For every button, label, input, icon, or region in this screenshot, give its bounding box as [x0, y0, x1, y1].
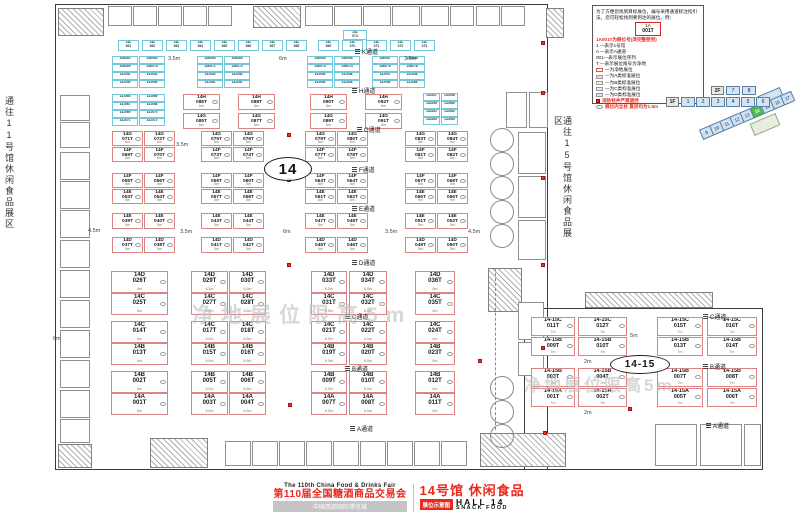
service-room	[744, 424, 761, 466]
fire-hydrant-marker	[478, 359, 482, 363]
booth-14G085T: 14G085T6m	[183, 113, 220, 129]
booth-14A004T: 14A004T6.5m	[229, 393, 266, 415]
booth-dimension: 6m	[239, 105, 274, 109]
booth-14D042T: 14D042T5m	[233, 237, 264, 253]
booth-14L066: 14L066	[238, 40, 259, 51]
fire-hydrant-marker	[628, 407, 632, 411]
booth-14D030T: 14D030T6.5m	[229, 271, 266, 293]
booth-14E061T: 14E061T6m	[305, 189, 336, 204]
minimap-hall-1: 1	[681, 97, 695, 107]
pillar-icon	[379, 380, 385, 384]
booth-dimension: 6.5m	[312, 410, 346, 414]
minimap-hall-8: 8	[742, 86, 756, 95]
booth-label: 14K070	[146, 65, 158, 69]
pillar-icon	[428, 195, 434, 199]
aisle-label-B通道: B通道	[345, 364, 368, 373]
pillar-icon	[256, 219, 262, 223]
dimension-label: 3.5m	[180, 229, 192, 235]
aisle-label-K通道: K通道	[355, 47, 378, 56]
booth-label: 062	[150, 45, 156, 49]
booth-dimension: 5m	[202, 183, 231, 187]
booth-14E066T: 14E066T5m	[437, 189, 468, 204]
stairs-area	[150, 438, 208, 468]
pillar-icon	[339, 330, 345, 334]
stairs-area	[58, 8, 104, 36]
booth-label: 022T	[361, 328, 375, 334]
booth-label: 072	[398, 45, 404, 49]
booth-14G071T: 14G071T6m	[112, 131, 143, 146]
fire-hydrant-marker	[287, 263, 291, 267]
pillar-icon	[567, 344, 573, 348]
legend-sample-line2: 001T	[636, 29, 660, 35]
booth-14J062: 14J062	[441, 109, 458, 117]
booth-dimension: 5m	[234, 224, 263, 228]
pillar-icon	[160, 302, 166, 306]
pillar-icon	[220, 352, 226, 356]
service-room	[60, 240, 90, 268]
booth-14G084T: 14G084T6m	[437, 131, 468, 146]
booth-14F064T: 14F064T6m	[337, 173, 368, 188]
booth-label: 065	[222, 45, 228, 49]
stairs-area	[488, 268, 522, 312]
booth-14G089T: 14G089T6m	[310, 113, 347, 129]
booth-label: 14J062	[444, 110, 455, 114]
booth-14B015T: 14B015T6.5m	[191, 343, 228, 365]
fire-hydrant-marker	[541, 176, 545, 180]
booth-14J045: 14J045	[307, 72, 333, 80]
booth-dimension: 7m	[658, 351, 702, 355]
booth-dimension: 6m	[416, 288, 454, 292]
stairs-icon	[352, 88, 357, 94]
booth-dimension: 5m	[113, 224, 142, 228]
booth-dimension: 5m	[438, 183, 467, 187]
dimension-text: 2m	[584, 359, 592, 365]
booth-14J061: 14J061	[423, 109, 440, 117]
pillar-icon	[339, 100, 345, 104]
booth-14J047: 14J047	[372, 72, 398, 80]
service-room	[60, 300, 90, 328]
fire-hydrant-marker	[543, 431, 547, 435]
stairs-area	[546, 8, 564, 38]
booth-14K076: 14K076	[399, 64, 425, 72]
booth-label: 14J051	[204, 81, 215, 85]
booth-14D029T: 14D029T6.5m	[191, 271, 228, 293]
booth-label: 009T	[322, 378, 336, 384]
booth-14J068: 14J068	[139, 102, 165, 110]
booth-14D026T: 14D026T6m	[111, 271, 168, 293]
booth-14E062T: 14E062T6m	[337, 189, 368, 204]
pillar-icon	[135, 219, 141, 223]
booth-14B023T: 14B023T6m	[415, 343, 455, 365]
pillar-icon	[328, 137, 334, 141]
booth-label: 011T	[428, 400, 441, 406]
corridor-label-left: 通往11号馆休闲食品展区	[4, 96, 13, 268]
booth-label: 019T	[322, 350, 336, 356]
booth-dimension: 5m	[145, 199, 174, 203]
booth-dimension: 6m	[145, 157, 174, 161]
booth-dimension: 5m	[145, 248, 174, 252]
booth-label: 073	[422, 45, 428, 49]
booth-14J051: 14J051	[197, 80, 223, 88]
booth-14J049: 14J049	[112, 80, 138, 88]
stairs-icon	[352, 206, 357, 212]
stairs-area	[58, 444, 92, 468]
booth-label: 14K074	[341, 65, 353, 69]
aisle-label-B通道: B通道	[703, 362, 726, 371]
booth-14D049T: 14D049T5m	[405, 237, 436, 253]
pillar-icon	[360, 243, 366, 247]
booth-14B009T: 14B009T6.5m	[311, 371, 347, 393]
dimension-label: 3.5m	[385, 229, 397, 235]
booth-label: 14J044	[231, 73, 242, 77]
booth-14L062: 14L062	[142, 40, 163, 51]
booth-14B012T: 14B012T6m	[415, 371, 455, 393]
booth-label: 035T	[428, 300, 442, 306]
pillar-icon	[339, 352, 345, 356]
pillar-icon	[447, 352, 453, 356]
dimension-label: 6m	[283, 229, 291, 235]
pillar-icon	[220, 402, 226, 406]
booth-label: 018T	[241, 328, 255, 334]
stairs-icon	[703, 314, 708, 320]
dimension-label: 2m	[584, 359, 592, 365]
booth-14E047T: 14E047T6m	[305, 213, 336, 229]
booth-14J058: 14J058	[441, 93, 458, 101]
booth-label: 14J049	[119, 81, 130, 85]
booth-dimension: 6m	[338, 183, 367, 187]
booth-label: 14J050	[146, 81, 157, 85]
booth-label: 011T	[547, 324, 559, 330]
booth-label: 014T	[133, 328, 147, 334]
dimension-text: 6m	[279, 56, 287, 62]
booth-14F060T: 14F060T5m	[233, 173, 264, 188]
booth-14K070: 14K070	[139, 64, 165, 72]
floor-plan-canvas: 通往11号馆休闲食品展区 通往15号馆休闲食品展区 为了方便您找到目标展位，编号…	[0, 0, 798, 516]
dimension-label: 4.5m	[88, 228, 100, 234]
service-room	[60, 419, 90, 443]
booth-14J070: 14J070	[139, 110, 165, 118]
dimension-label: 6m	[53, 336, 61, 342]
booth-label: 14J054	[341, 81, 352, 85]
booth-14K074: 14K074	[334, 64, 360, 72]
booth-dimension: 6m	[239, 124, 274, 128]
minimap-1f-label: 1F	[666, 97, 679, 107]
booth-label: 14K069	[119, 65, 131, 69]
service-room	[60, 152, 90, 180]
booth-dimension: 5m	[113, 183, 142, 187]
booth-dimension: 6m	[338, 248, 367, 252]
aisle-text: B通道	[352, 364, 368, 373]
pillar-icon	[447, 330, 453, 334]
booth-dimension: 6m	[112, 310, 167, 314]
booth-dimension: 5m	[234, 183, 263, 187]
booth-14L074: 14L074	[343, 30, 367, 40]
booth-dimension: 6m	[406, 141, 435, 145]
pillar-icon	[224, 243, 230, 247]
booth-label: 14K066	[341, 57, 353, 61]
pillar-icon	[258, 402, 264, 406]
booth-dimension: 5m	[145, 224, 174, 228]
booth-14F070T: 14F070T6m	[144, 147, 175, 162]
booth-dimension: 6.5m	[230, 410, 265, 414]
booth-dimension: 7m	[532, 351, 574, 355]
booth-14L067: 14L067	[262, 40, 283, 51]
pillar-icon	[256, 137, 262, 141]
pillar-icon	[749, 324, 755, 328]
pillar-icon	[379, 280, 385, 284]
booth-label: 016T	[241, 350, 255, 356]
booth-14J056: 14J056	[399, 80, 425, 88]
booth-dimension: 6m	[338, 199, 367, 203]
booth-dimension: 6.5m	[192, 288, 227, 292]
booth-dimension: 6.5m	[312, 288, 346, 292]
booth-label: 14J060	[444, 102, 455, 106]
booth-14J059: 14J059	[423, 101, 440, 109]
booth-14J055: 14J055	[372, 80, 398, 88]
pillar-icon	[619, 344, 625, 348]
pillar-icon	[379, 352, 385, 356]
booth-label: 061	[126, 45, 132, 49]
booth-label: 14K075	[379, 65, 391, 69]
booth-dimension: 6.5m	[312, 338, 346, 342]
pillar-icon	[428, 179, 434, 183]
booth-14F069T: 14F069T6m	[112, 147, 143, 162]
aisle-text: G通道	[364, 125, 381, 134]
aisle-label-D通道: D通道	[352, 258, 375, 267]
stairs-area	[253, 6, 301, 28]
booth-dimension: 6m	[202, 157, 231, 161]
booth-label: 013T	[133, 350, 147, 356]
booth-dimension: 6m	[112, 360, 167, 364]
booth-label: 14J047	[379, 73, 390, 77]
minimap-hall-7: 7	[726, 86, 740, 95]
booth-14K069: 14K069	[112, 64, 138, 72]
pillar-icon	[167, 153, 173, 157]
booth-dimension: 6.5m	[192, 338, 227, 342]
service-room	[518, 132, 546, 174]
booth-14-15B010T: 14-15B010T7m	[578, 337, 627, 356]
watermark: 净地展位限高5m	[192, 299, 412, 329]
booth-label: 014T	[726, 344, 739, 350]
booth-14L072: 14L072	[390, 40, 411, 51]
booth-dimension: 6m	[416, 410, 454, 414]
booth-14L063: 14L063	[166, 40, 187, 51]
booth-dimension: 5m	[406, 224, 435, 228]
booth-label: 14K072	[231, 65, 243, 69]
booth-label: 14J070	[146, 111, 157, 115]
booth-14A008T: 14A008T6.5m	[349, 393, 387, 415]
booth-dimension: 6m	[112, 338, 167, 342]
pillar-icon	[167, 179, 173, 183]
booth-label: 14J053	[314, 81, 325, 85]
pillar-icon	[267, 100, 273, 104]
booth-14K061: 14K061	[112, 56, 138, 64]
booth-14G087T: 14G087T6m	[238, 113, 275, 129]
service-room	[60, 360, 90, 388]
service-room	[392, 6, 420, 26]
booth-14H090T: 14H090T6m	[310, 94, 347, 110]
booth-label: 14J072	[146, 119, 157, 123]
booth-14F059T: 14F059T5m	[201, 173, 232, 188]
booth-dimension: 6.5m	[192, 360, 227, 364]
service-room	[279, 441, 305, 466]
booth-14J067: 14J067	[112, 102, 138, 110]
pillar-icon	[695, 344, 701, 348]
booth-label: 14J046	[341, 73, 352, 77]
booth-label: 025T	[133, 300, 147, 306]
booth-14A003T: 14A003T6.5m	[191, 393, 228, 415]
dimension-text: 2m	[584, 410, 592, 416]
legend-swatches: —为净地展位—为A类标准展位—为B类标准展位—为C类标准展位—为D类标准展位	[596, 67, 700, 98]
booth-label: 001T	[133, 400, 147, 406]
aisle-text: E通道	[359, 204, 375, 213]
booth-14F078T: 14F078T6m	[337, 147, 368, 162]
pillar-icon	[695, 324, 701, 328]
booth-label: 005T	[203, 378, 217, 384]
service-room	[655, 424, 697, 466]
scalloped-wall	[489, 376, 515, 468]
aisle-label-F通道: F通道	[352, 165, 375, 174]
booth-dimension: 5m	[202, 199, 231, 203]
service-room	[158, 6, 182, 26]
booth-dimension: 6.5m	[312, 360, 346, 364]
plan-badge: 展位示意图	[420, 499, 454, 510]
pillar-icon	[379, 402, 385, 406]
booth-dimension: 6m	[145, 141, 174, 145]
dimension-text: 3.5m	[176, 142, 188, 148]
venue-name: 中国西部国际博览城	[273, 501, 406, 512]
booth-dimension: 7m	[579, 331, 626, 335]
title-divider	[413, 484, 414, 512]
booth-14G083T: 14G083T6m	[405, 131, 436, 146]
booth-14F074T: 14F074T6m	[233, 147, 264, 162]
booth-label: 14J057	[426, 94, 437, 98]
fire-hydrant-marker	[288, 403, 292, 407]
booth-label: 010T	[361, 378, 375, 384]
booth-14F067T: 14F067T5m	[405, 173, 436, 188]
service-room	[208, 6, 232, 26]
booth-dimension: 6.5m	[192, 388, 227, 392]
fire-hydrant-marker	[541, 41, 545, 45]
booth-14J072: 14J072	[139, 118, 165, 126]
booth-14J063: 14J063	[423, 117, 440, 125]
booth-label: 012T	[428, 378, 442, 384]
service-room	[518, 176, 546, 218]
booth-14-15C012T: 14-15C012T7m	[578, 317, 627, 336]
pillar-icon	[258, 280, 264, 284]
pillar-icon	[224, 179, 230, 183]
booth-label: 005T	[674, 395, 687, 401]
booth-14D045T: 14D045T6m	[305, 237, 336, 253]
booth-14D041T: 14D041T5m	[201, 237, 232, 253]
aisle-text: D通道	[359, 258, 375, 267]
pillar-icon	[160, 280, 166, 284]
booth-dimension: 5m	[202, 224, 231, 228]
pillar-icon	[135, 195, 141, 199]
booth-label: 14J052	[231, 81, 242, 85]
booth-14D050T: 14D050T5m	[437, 237, 468, 253]
service-room	[700, 424, 742, 466]
booth-14L061: 14L061	[118, 40, 139, 51]
booth-dimension: 6m	[184, 124, 219, 128]
booth-dimension: 6m	[416, 360, 454, 364]
aisle-text: K通道	[362, 47, 378, 56]
booth-14E053T: 14E053T5m	[112, 189, 143, 204]
pillar-icon	[328, 243, 334, 247]
booth-label: 14K071	[204, 65, 216, 69]
booth-label: 008T	[726, 375, 739, 381]
booth-14E054T: 14E054T5m	[144, 189, 175, 204]
booth-dimension: 6m	[113, 157, 142, 161]
booth-label: 14J063	[426, 118, 437, 122]
pillar-icon	[379, 330, 385, 334]
booth-14-15B014T: 14-15B014T7m	[707, 337, 757, 356]
booth-14E065T: 14E065T5m	[405, 189, 436, 204]
booth-dimension: 5m	[113, 248, 142, 252]
service-room	[360, 441, 386, 466]
aisle-label-A通道: A通道	[706, 421, 729, 430]
booth-14K062: 14K062	[139, 56, 165, 64]
booth-14J069: 14J069	[112, 110, 138, 118]
booth-label: 14J068	[146, 103, 157, 107]
pillar-icon	[167, 219, 173, 223]
booth-14K063: 14K063	[197, 56, 223, 64]
legend-swatch	[596, 87, 603, 91]
booth-14-15C015T: 14-15C015T7m	[657, 317, 703, 336]
minimap-hall-4: 4	[726, 97, 740, 107]
pillar-icon	[167, 137, 173, 141]
booth-dimension: 5m	[406, 199, 435, 203]
booth-label: 010T	[596, 344, 609, 350]
booth-14D033T: 14D033T6.5m	[311, 271, 347, 293]
booth-14A007T: 14A007T6.5m	[311, 393, 347, 415]
booth-label: 14J066	[146, 95, 157, 99]
service-room	[60, 390, 90, 418]
service-room	[421, 6, 449, 26]
aisle-label-E通道: E通道	[352, 204, 375, 213]
service-room	[363, 6, 391, 26]
booth-14D037T: 14D037T5m	[112, 237, 143, 253]
pillar-icon	[394, 119, 400, 123]
booth-label: 068	[294, 45, 300, 49]
pillar-icon	[224, 219, 230, 223]
booth-14J050: 14J050	[139, 80, 165, 88]
booth-label: 036T	[428, 278, 442, 284]
dimension-label: 3.5m	[404, 56, 416, 62]
legend-swatch	[596, 81, 603, 85]
booth-dimension: 6m	[306, 183, 335, 187]
service-room	[60, 210, 90, 238]
booth-14B013T: 14B013T6m	[111, 343, 168, 365]
fire-hydrant-marker	[541, 91, 545, 95]
booth-dimension: 6m	[416, 310, 454, 314]
booth-dimension: 6m	[306, 141, 335, 145]
pillar-icon	[160, 352, 166, 356]
booth-14A011T: 14A011T6m	[415, 393, 455, 415]
service-room	[60, 270, 90, 298]
booth-dimension: 6m	[306, 248, 335, 252]
booth-dimension: 7m	[579, 402, 626, 406]
fire-hydrant-marker	[541, 346, 545, 350]
booth-dimension: 6m	[113, 141, 142, 145]
fair-title-cn: 第110届全国糖酒商品交易会	[273, 490, 406, 500]
booth-14E048T: 14E048T6m	[337, 213, 368, 229]
pillar-icon	[160, 380, 166, 384]
pillar-icon	[460, 179, 466, 183]
legend-pillar-text: 展位内立柱 直径均为1.5m	[605, 104, 658, 110]
service-room	[441, 441, 467, 466]
fire-hydrant-icon	[596, 99, 600, 103]
